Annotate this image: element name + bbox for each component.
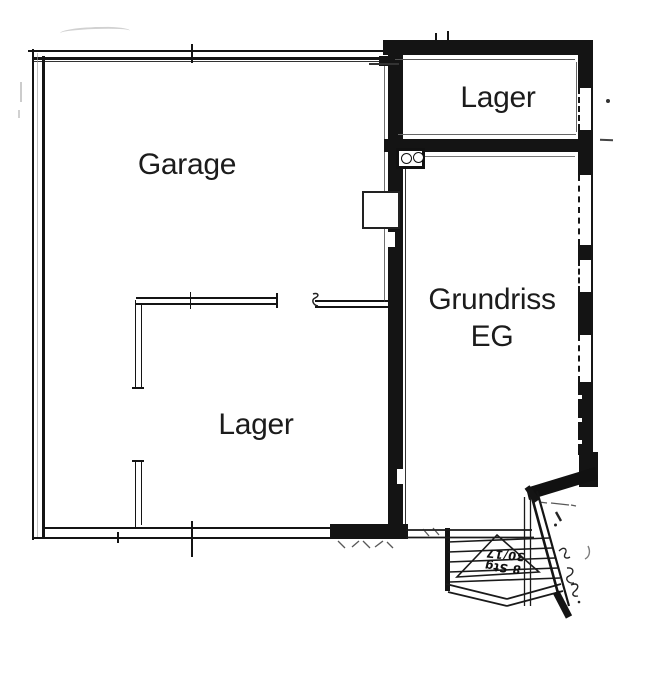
- plan-title: Grundriss EG: [402, 281, 582, 355]
- room-label-lager-bottom: Lager: [186, 407, 326, 443]
- chimney-flue-right-icon: [413, 152, 424, 163]
- partition-squiggle-mark: [313, 293, 318, 306]
- scan-squiggles-stairs: [554, 512, 589, 603]
- room-label-lager-top: Lager: [430, 80, 566, 116]
- plan-title-line1: Grundriss: [402, 281, 582, 318]
- hatched-opening-icon: [362, 191, 400, 229]
- plan-title-line2: EG: [402, 318, 582, 355]
- floor-plan-canvas: Garage Lager Lager Grundriss EG 8 Stg 30…: [0, 0, 672, 676]
- chimney-flue-left-icon: [401, 153, 412, 164]
- wall-angled-south: [526, 467, 598, 500]
- room-label-garage: Garage: [110, 147, 264, 183]
